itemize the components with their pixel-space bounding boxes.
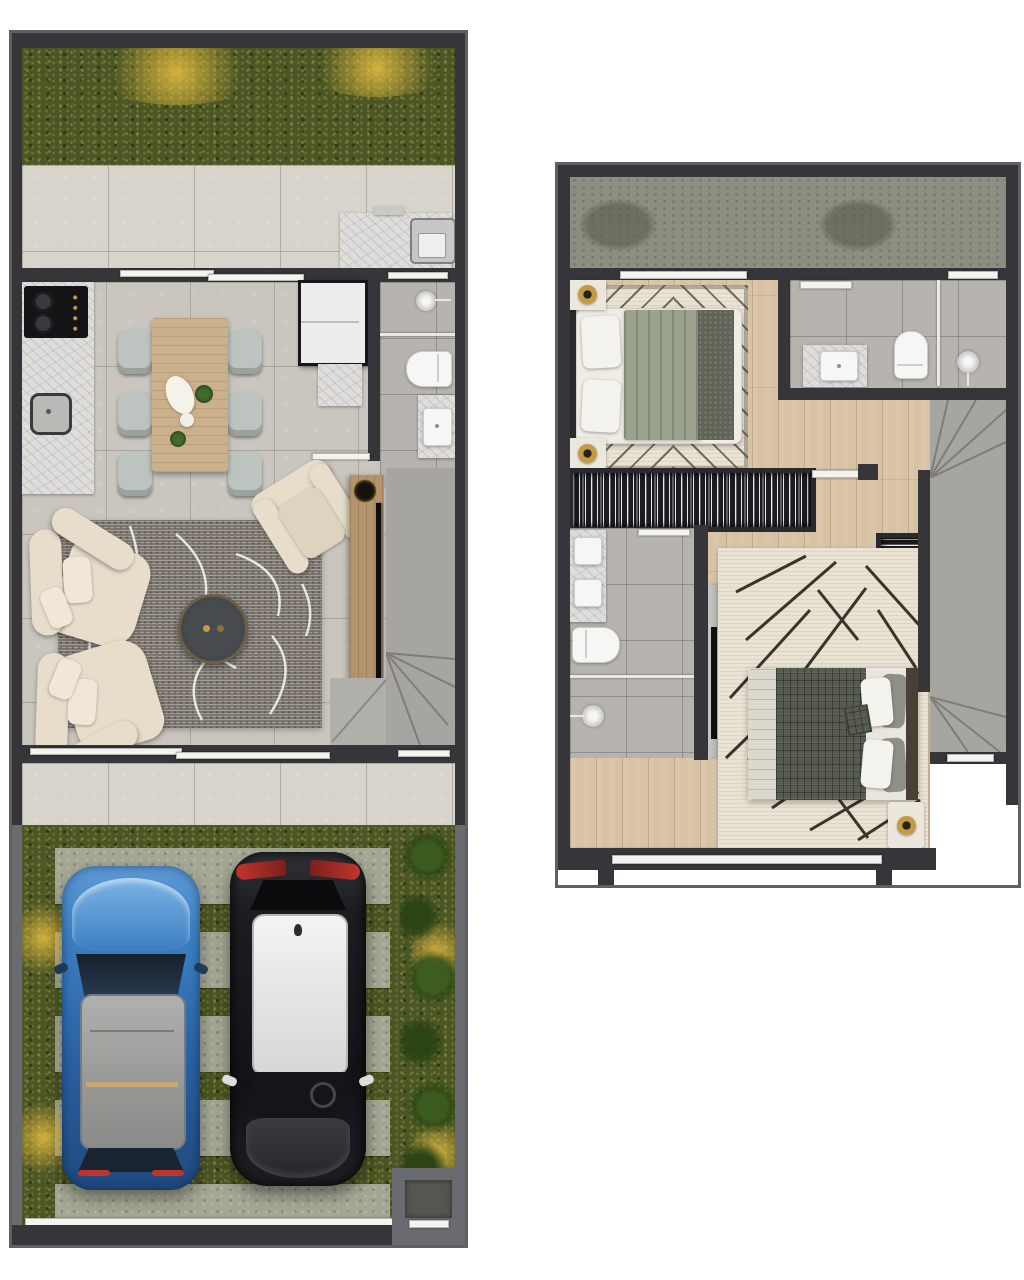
table-decor-dot [217, 625, 224, 632]
staircase-winder [386, 645, 455, 745]
bed2-accent-cushion [844, 704, 872, 736]
staircase-flight [386, 468, 455, 645]
table-plant [170, 431, 186, 447]
bed2-headboard [906, 668, 918, 800]
ground-floor-plan [12, 33, 465, 1245]
wall-stub-hall [858, 464, 878, 480]
wall-top [12, 33, 465, 48]
wall-stub-bottom [876, 870, 892, 885]
bathroom1-toilet [894, 331, 928, 379]
car-hood [72, 878, 190, 950]
shower-head [416, 291, 436, 311]
fence-right [455, 825, 465, 1168]
tall-cabinet [318, 364, 362, 406]
stairs-winder-top [930, 400, 1006, 478]
entry-gate-door [409, 1220, 449, 1228]
bathroom1-door [800, 281, 852, 289]
wall-left [558, 165, 570, 870]
sliding-door-front [176, 752, 330, 759]
shower2-arm [570, 715, 584, 717]
car-taillight [235, 859, 286, 880]
shower1-stem [967, 373, 969, 386]
toilet-tank-line [585, 630, 587, 658]
toilet [406, 351, 452, 387]
car-roof [252, 914, 348, 1076]
car-blue [62, 866, 200, 1190]
car-roof [80, 994, 186, 1150]
bathroom1-window [948, 271, 998, 279]
shower-arm [435, 299, 451, 301]
dining-chair [118, 392, 152, 436]
nightstand [570, 280, 606, 310]
sunroof-line [90, 1030, 174, 1032]
wall-left [12, 33, 22, 825]
cooktop [24, 286, 88, 338]
faucet-block [374, 206, 404, 215]
service-window [388, 272, 448, 279]
bathroom2-door [638, 529, 690, 536]
laundry-tank [410, 218, 456, 264]
dining-chair [228, 452, 262, 496]
dining-chair [228, 330, 262, 374]
car-taillight [78, 1170, 110, 1176]
laundry-basin [418, 233, 446, 258]
car-windshield [250, 1072, 346, 1120]
car-rear-window [250, 880, 346, 910]
bathroom1-sink [820, 351, 858, 381]
shower1-head [957, 351, 979, 373]
tv-2 [711, 627, 717, 739]
table-plant [195, 385, 213, 403]
dining-chair [118, 330, 152, 374]
bathroom2-sink [574, 579, 602, 607]
bed1-runner [698, 310, 734, 440]
tv [376, 503, 381, 681]
table-lamp [578, 285, 597, 304]
table-lamp [578, 444, 597, 463]
dining-chair [228, 392, 262, 436]
bed2-foot-quilt [748, 668, 776, 800]
wall-top [558, 165, 1018, 177]
decor-bowl [353, 479, 377, 503]
wall-right [455, 33, 465, 825]
double-bed-2 [748, 668, 918, 800]
wardrobe-1 [568, 468, 816, 532]
car-windshield [76, 954, 186, 998]
roof-crossbar [86, 1082, 178, 1087]
shower2-head [582, 705, 604, 727]
double-bed-1 [568, 308, 740, 442]
vanity-sink [423, 408, 452, 446]
car-hood [246, 1118, 350, 1178]
dining-chair [118, 452, 152, 496]
shrub-row [400, 833, 455, 1213]
roof-slab [570, 177, 1006, 268]
bedroom1-door [812, 470, 860, 478]
toilet-tank-line [437, 354, 439, 382]
coffee-table [178, 594, 248, 664]
sofa-cushion [62, 556, 93, 604]
stairs-winder-bottom [930, 693, 1006, 752]
car-rear-window [78, 1148, 184, 1172]
bathroom2-sink [574, 537, 602, 565]
nightstand-2 [888, 802, 924, 848]
wall-bathroom2-right [694, 525, 708, 760]
sink-faucet [837, 364, 841, 368]
shower2-glass [570, 675, 694, 678]
fence-left [12, 825, 22, 1245]
steering-wheel [310, 1082, 336, 1108]
entry-gate-frame [392, 1168, 465, 1245]
table-lamp [897, 816, 916, 835]
kitchen-sink [30, 393, 72, 435]
refrigerator [298, 280, 368, 366]
bathroom2-toilet [572, 627, 620, 663]
upper-floor-plan [558, 165, 1018, 885]
wall-stairs-left [918, 470, 930, 692]
antenna-fin [294, 924, 302, 936]
exterior-notch [930, 764, 1018, 848]
front-patio [22, 763, 455, 825]
toilet-tank-line [897, 364, 923, 366]
wall-bathroom1-bottom [778, 388, 1006, 400]
fridge-door-split [301, 321, 359, 323]
sliding-door-track [208, 274, 304, 281]
car-taillight [309, 859, 360, 880]
shower-glass [380, 333, 455, 336]
bed1-pillow [581, 315, 622, 369]
stair-landing [330, 678, 386, 745]
bedroom2-window [612, 855, 882, 864]
shower1-glass [937, 280, 940, 386]
bedroom1-window [620, 271, 747, 279]
wall-right [1006, 165, 1018, 805]
wall-bedroom1-bathroom1 [778, 268, 790, 388]
sliding-door-track [120, 270, 214, 277]
stairs-window [947, 754, 994, 762]
stairs-flight [930, 478, 1006, 693]
bed1-pillow [581, 379, 622, 433]
wall-stub-bottom [598, 870, 614, 885]
fence-front [12, 1225, 404, 1245]
wall-bathroom [368, 268, 380, 433]
bed2-pillow [860, 739, 894, 789]
garden-light-glow [92, 41, 262, 105]
sliding-door-front [30, 748, 182, 755]
car-black [230, 852, 366, 1186]
sink-drain [46, 409, 51, 414]
table-bowl [180, 413, 194, 427]
nightstand [570, 438, 606, 470]
table-decor-dot [203, 625, 210, 632]
entry-gate-pad [405, 1180, 452, 1218]
stair-door [398, 750, 450, 757]
sink-faucet [435, 424, 439, 428]
car-taillight [152, 1170, 184, 1176]
bed1-blanket [624, 310, 702, 440]
